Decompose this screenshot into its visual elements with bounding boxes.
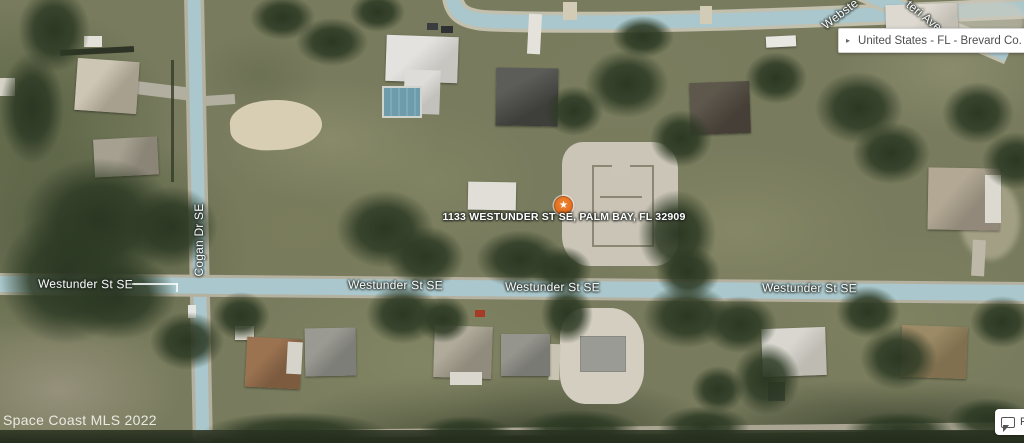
driveway (527, 14, 542, 55)
tree (970, 296, 1024, 348)
tree (860, 326, 937, 390)
vehicle (475, 310, 485, 317)
driveway (971, 240, 986, 277)
street-label-westunder-4: Westunder St SE (762, 281, 857, 296)
foundation-line (600, 196, 642, 198)
property-address-label: 1133 WESTUNDER ST SE, PALM BAY, FL 32909 (443, 211, 686, 223)
fence (171, 60, 174, 182)
driveway (700, 6, 712, 24)
star-icon: ★ (559, 201, 568, 211)
tree (585, 50, 669, 118)
tree (650, 110, 712, 167)
driveway (130, 81, 189, 101)
vehicle (427, 23, 438, 30)
feedback-label: Fe (1020, 416, 1024, 428)
street-label-westunder-3: Westunder St SE (505, 280, 600, 295)
tree (852, 122, 930, 184)
garage (468, 182, 516, 211)
mls-watermark: Space Coast MLS 2022 (3, 412, 157, 428)
tree (416, 296, 470, 343)
house (74, 58, 139, 114)
tree (296, 18, 368, 66)
label-leader-line (132, 283, 178, 285)
vehicle-rv (766, 35, 797, 48)
satellite-map[interactable]: Westunder St SE Westunder St SE Westunde… (0, 0, 1024, 443)
driveway (563, 2, 577, 20)
breadcrumb-path[interactable]: United States - FL - Brevard Co. - Palm … (858, 35, 1024, 47)
street-label-westunder-1: Westunder St SE (38, 277, 133, 292)
house (501, 334, 550, 376)
breadcrumb[interactable]: ▸ United States - FL - Brevard Co. - Pal… (838, 28, 1024, 53)
tree (733, 343, 800, 415)
driveway (205, 94, 236, 106)
street-label-cogan: Cogan Dr SE (192, 204, 206, 277)
pool-enclosure (382, 86, 422, 118)
feedback-button[interactable]: Fe (995, 409, 1024, 435)
foundation-notch (612, 163, 630, 177)
house (305, 328, 357, 377)
vehicle (441, 26, 453, 33)
tree (612, 16, 674, 58)
street-label-westunder-2: Westunder St SE (348, 278, 443, 293)
mls-map-view: Westunder St SE Westunder St SE Westunde… (0, 0, 1024, 443)
slab (450, 372, 482, 385)
collapse-arrow-icon[interactable]: ▸ (846, 36, 850, 45)
speech-bubble-icon (1001, 417, 1015, 428)
canal-strip (0, 430, 1024, 443)
slab-south (580, 336, 626, 372)
label-leader-corner (176, 283, 178, 292)
tree (745, 52, 807, 104)
house-wing (286, 342, 303, 375)
driveway (548, 344, 560, 380)
sand-pad (229, 98, 323, 153)
tree (0, 52, 64, 164)
tree (212, 292, 270, 340)
